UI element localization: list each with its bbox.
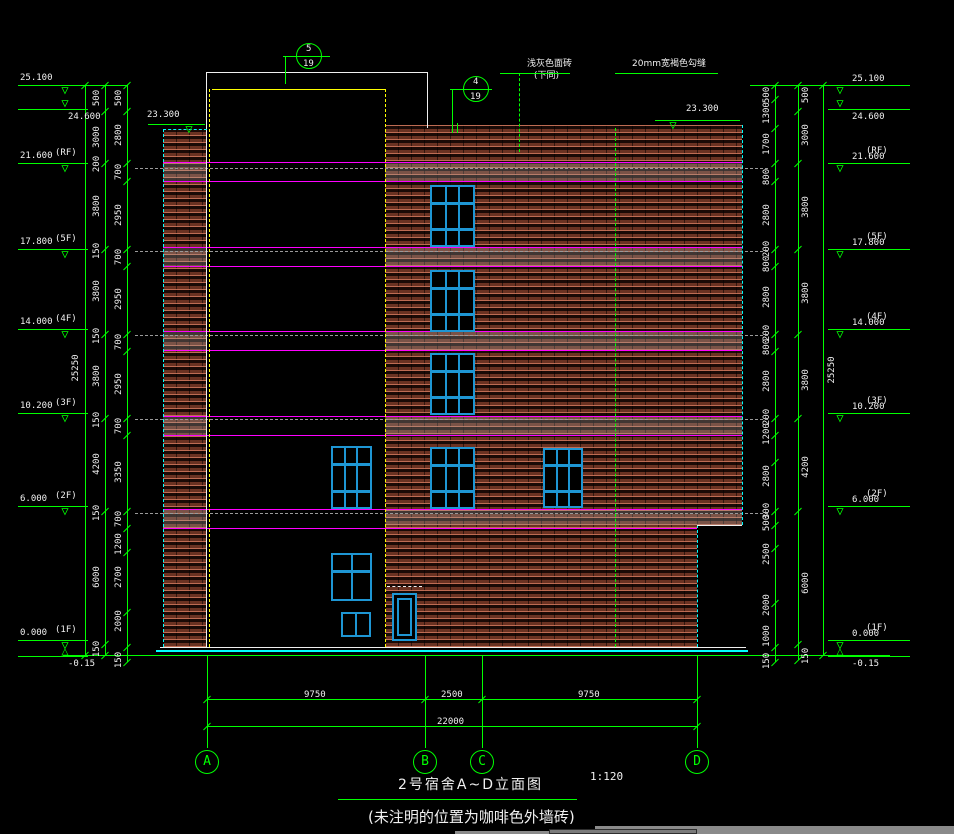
title-underline [338,799,577,800]
ground-white [160,647,746,648]
level-value: 21.600 [20,151,53,161]
level-line [18,85,88,86]
dim-label: 2800 [762,204,772,226]
dim-label: 3800 [92,280,102,302]
dim-label: 800 [762,169,772,185]
callout-detail-number: 5 [306,44,311,54]
grid-witness-line [697,655,698,748]
level-marker-triangle: ▽ [56,412,74,424]
floor-band [385,331,742,350]
dim-label: 3800 [801,369,811,391]
floor-label: (3F) [55,398,77,408]
dim-label: 2800 [762,465,772,487]
parapet-right-white [427,72,428,128]
level-line [18,506,88,507]
window [341,612,371,637]
window-mullion [545,490,581,493]
window-mullion [333,490,370,493]
dim-label: 3800 [92,365,102,387]
dim-label: 200 [762,241,772,257]
band-line-bottom [163,266,742,267]
level-marker-triangle: ▽ [831,248,849,260]
window-mullion [333,570,370,573]
dim-label: 2800 [114,124,124,146]
dim-label: 150 [801,648,811,664]
dim-label: 2800 [762,370,772,392]
level-line [18,163,88,164]
stem-tick-b [457,123,458,133]
dim-label: 1200 [762,423,772,445]
dim-label: 2950 [114,288,124,310]
grid-witness-line [425,655,426,748]
level-value: 25.100 [20,73,53,83]
dim-label: 500 [801,87,811,103]
dim-label: 2000 [114,610,124,632]
grid-bubble: A [195,750,219,774]
dim-label: 500 [92,90,102,106]
dim-label: 3350 [114,461,124,483]
dim-label: 700 [114,334,124,350]
floor-band [385,509,742,525]
dim-label: 25250 [71,354,81,381]
floor-label: (4F) [866,312,888,322]
dim-label: 3000 [92,126,102,148]
band-line-top [163,416,742,417]
window-mullion [355,614,357,635]
dim-label: 25250 [827,356,837,383]
grid-dim-value: 2500 [441,690,463,700]
band-line-top [163,247,742,248]
window-mullion [351,555,353,599]
window-mullion [397,598,399,636]
tower-left-yellow-dash [209,89,210,647]
window [430,447,475,509]
strip-brick [163,129,207,647]
window-mullion [432,228,473,231]
dim-label: 500 [114,90,124,106]
callout-divider [283,56,330,57]
band-line-bottom [163,350,742,351]
dim-label: 3800 [801,282,811,304]
window-mullion [545,464,581,467]
dim-label: 3800 [801,196,811,218]
level-value: 24.600 [68,112,101,122]
note1-leader-dash [519,73,520,152]
level-value: -0.15 [852,659,879,669]
window-mullion [432,287,473,290]
drawing-title: 2号宿舍A~D立面图 [398,774,543,794]
level-value: 0.000 [20,628,47,638]
grid-dim-value: 9750 [578,690,600,700]
dim-label: 150 [92,641,102,657]
floor-label: (1F) [866,623,888,633]
floor-band [163,509,207,528]
window-mullion [397,598,412,600]
dim-label: 150 [762,653,772,669]
band-line-bottom [163,435,742,436]
parapet-level-value: 23.300 [147,110,180,120]
right-b-line [775,85,776,662]
dim-label: 500 [762,515,772,531]
drawing-scale: 1:120 [590,772,623,782]
slab-line [135,419,768,420]
dim-label: 4200 [92,453,102,475]
dim-label: 6000 [92,566,102,588]
level-value: 24.600 [852,112,885,122]
level-marker-triangle: ▽ [831,328,849,340]
level-line [18,656,88,657]
window-mullion [432,396,473,399]
level-line [18,249,88,250]
window-mullion [432,490,473,493]
parapet-level-value: 23.300 [686,104,719,114]
dim-label: 150 [114,652,124,668]
slab-line [135,513,768,514]
step-top-white [697,525,742,526]
window-mullion [432,313,473,316]
dim-label: 3000 [801,124,811,146]
window-mullion [445,272,447,330]
parapet-top-white [206,72,427,73]
floor-label: (RF) [866,146,888,156]
window-mullion [397,634,412,636]
floor-band [163,331,207,350]
level-value: 14.000 [20,317,53,327]
dim-label: 800 [762,339,772,355]
level-value: 6.000 [20,494,47,504]
window-mullion [432,202,473,205]
level-marker-triangle: ▽ [56,505,74,517]
ground-cyan [156,650,748,652]
band-line-top [163,509,742,510]
callout-stem [452,89,453,127]
level-marker-triangle: ▽ [56,84,74,96]
right-overall-line [823,85,824,655]
window-mullion [568,450,570,506]
dim-label: 1000 [762,625,772,647]
window [430,353,475,415]
material-note-1b: (下同) [534,68,559,81]
window-mullion [445,355,447,413]
window-mullion [458,187,460,245]
dim-label: 700 [114,164,124,180]
dim-label: 3800 [92,195,102,217]
level-marker-triangle: ▽ [831,505,849,517]
window [331,446,372,509]
callout-sheet-number: 19 [303,59,314,69]
window-mullion [356,448,358,507]
dim-label: 800 [762,256,772,272]
grid-bubble-label: B [414,751,436,773]
callout-divider [450,89,492,90]
floor-label: (5F) [55,234,77,244]
grid-bubble: B [413,750,437,774]
level-marker-triangle: ▽ [56,162,74,174]
level-line [18,109,88,110]
level-marker-triangle: ▽ [831,97,849,109]
window-mullion [333,463,370,466]
floor-label: (3F) [866,396,888,406]
slab-line [135,168,768,169]
window-mullion [556,450,558,506]
dim-label: 1300 [762,102,772,124]
grid-total-value: 22000 [437,717,464,727]
window-mullion [458,449,460,507]
floor-label: (2F) [866,489,888,499]
band-line-bottom [163,181,742,182]
window [331,553,372,601]
window [543,448,583,508]
parapet-marker-triangle: ▽ [180,123,198,135]
dim-label: 2800 [762,286,772,308]
wall-right-cyan-dash [742,125,743,525]
band-line-bottom [163,528,697,529]
parapet-marker-triangle: ▽ [664,119,682,131]
window [430,270,475,332]
grid-dim-value: 9750 [304,690,326,700]
dim-label: 1200 [114,533,124,555]
material-note-2: 20mm宽褐色勾缝 [632,56,706,69]
level-value: -0.15 [68,659,95,669]
dim-label: 150 [92,505,102,521]
window-fragment-inset [549,829,697,834]
dim-label: 700 [114,249,124,265]
grid-bubble: C [470,750,494,774]
floor-label: (RF) [55,148,77,158]
window-mullion [344,448,346,507]
window-mullion [432,370,473,373]
dim-label: 2700 [114,566,124,588]
grid-bubble: D [685,750,709,774]
level-value: 25.100 [852,74,885,84]
dim-label: 2950 [114,373,124,395]
floor-label: (2F) [55,491,77,501]
level-marker-triangle: ▽ [56,97,74,109]
dim-label: 700 [114,418,124,434]
dim-label: 4200 [801,456,811,478]
top-tie-left [88,85,127,86]
note1-underline [500,73,570,74]
door-lintel-dash [387,586,422,587]
level-marker-triangle: ▽ [831,162,849,174]
level-line [828,656,910,657]
window-mullion [458,355,460,413]
grid-bubble-label: C [471,751,493,773]
dim-label: 150 [92,243,102,259]
floor-label: (5F) [866,232,888,242]
floor-label: (4F) [55,314,77,324]
band-line-top [163,162,742,163]
level-line [18,640,88,641]
window-mullion [445,187,447,245]
window [430,185,475,247]
level-value: 10.200 [20,401,53,411]
left-overall-line [85,85,86,655]
level-line [18,413,88,414]
floor-band [163,162,207,181]
window-mullion [445,449,447,507]
dim-label: 200 [92,156,102,172]
dim-label: 700 [114,511,124,527]
slab-line [135,335,768,336]
callout-stem [285,56,286,84]
callout-sheet-number: 19 [470,92,481,102]
level-line [18,329,88,330]
level-marker-triangle: ▽ [56,328,74,340]
right-a-line [798,85,799,660]
callout-detail-number: 4 [473,77,478,87]
entry-door [392,593,417,641]
window-mullion [410,598,412,636]
grid-witness-line [207,655,208,748]
parapet-yellow [212,89,385,90]
strip-left-cyan-dash [163,129,164,647]
level-value: 17.800 [20,237,53,247]
tower-left-white [206,72,207,647]
window-mullion [458,272,460,330]
grid-bubble-label: A [196,751,218,773]
floor-label: (1F) [55,625,77,635]
level-marker-triangle: ▽ [831,84,849,96]
level-marker-triangle: ▽ [56,248,74,260]
slab-line [135,251,768,252]
dim-label: 2000 [762,594,772,616]
window-mullion [432,464,473,467]
wall-step-cyan-dash [697,525,698,647]
dim-label: 2950 [114,204,124,226]
dim-label: 150 [92,412,102,428]
floor-band [385,162,742,181]
floor-band [163,247,207,266]
dim-label: 2500 [762,543,772,565]
dim-label: 1700 [762,133,772,155]
note2-underline [615,73,718,74]
wall-lower-brick [385,525,697,647]
floor-band [385,247,742,266]
drawing-note: (未注明的位置为咖啡色外墙砖) [368,806,575,827]
grid-bubble-label: D [686,751,708,773]
joint-green-dash [615,128,616,647]
grid-witness-line [482,655,483,748]
dim-label: 6000 [801,572,811,594]
cad-elevation-canvas: 2号宿舍A~D立面图 1:120 (未注明的位置为咖啡色外墙砖) 浅灰色面砖 (… [0,0,954,834]
left-a-line [105,85,106,655]
level-marker-triangle: ▽ [831,412,849,424]
tower-right-yellow-dash [385,89,386,647]
top-tie-right [750,85,830,86]
dim-label: 500 [762,87,772,103]
left-b-line [127,85,128,662]
dim-label: 150 [92,328,102,344]
